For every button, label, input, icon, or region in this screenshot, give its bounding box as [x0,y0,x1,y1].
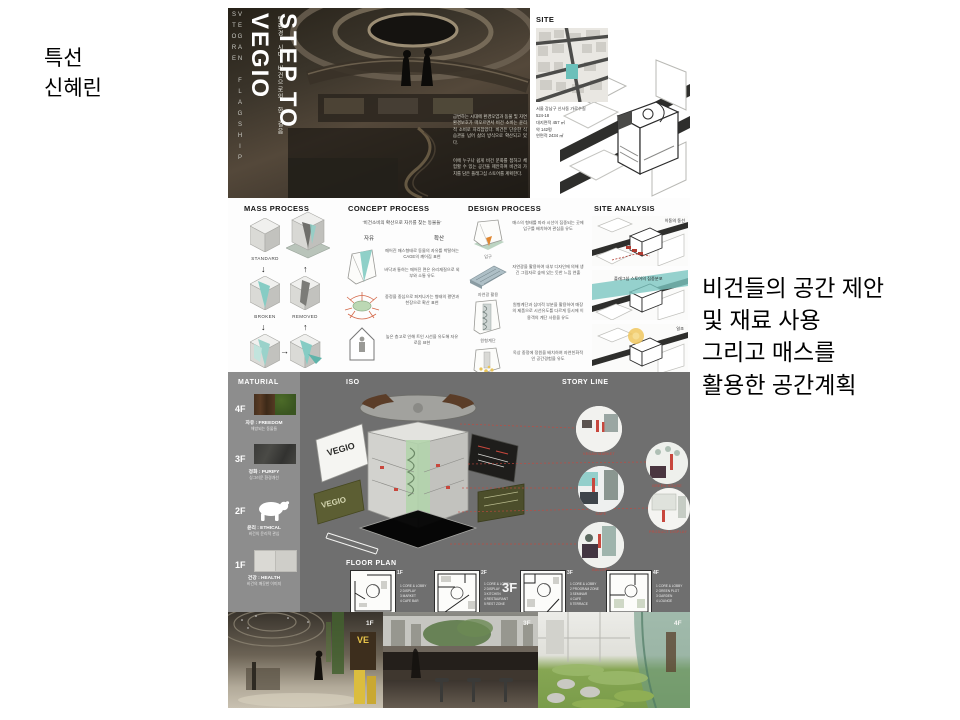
floor-level-1f: 1F [235,560,246,570]
story-vignette-4 [648,488,690,530]
lower-section: MATURIAL 4F 자유 : FREEDOM 해방되는 동물들 3F 정화 … [228,372,690,612]
note-line: 활용한 공간계획 [702,369,884,401]
ve-signboard: VE [350,632,376,670]
render-label-1f: 1F [366,620,374,627]
design-process-header: DESIGN PROCESS [468,204,541,213]
material-sub-4f: 해방되는 동물들 [228,426,300,432]
material-sub-3f: 싱그러운 환경개선 [228,475,300,481]
render-1f-atrium: VE 1F [228,612,383,708]
analysis-label-circulation: 이동의 동선 [665,218,685,224]
floor-plan-legend-3f: 1 CORE & LOBBY 2 PROGRAM ZONE 3 SEMINAR … [570,582,602,607]
story-vignette-2 [646,442,688,484]
arrow-up-icon: ↑ [303,264,308,274]
yellow-pillar [354,670,365,704]
site-analysis-header: SITE ANALYSIS [594,204,655,213]
note-line: 비건들의 공간 제안 [702,272,884,304]
story-vignette-1 [576,406,622,452]
polar-bear-icon [254,498,294,522]
floor-plan-label-4f: 4F [653,570,659,576]
material-swatch-grass [275,394,296,415]
analysis-diagram-circulation: 이동의 동선 [592,216,688,266]
render-4f-garden: 4F [538,612,690,708]
arrow-right-icon: → [280,346,289,356]
mass-cube-standard [250,218,280,252]
mass-cube-add-surface [250,334,280,368]
material-title-3f: 정화 : PURIFY [228,468,300,475]
floor-level-3f: 3F [235,454,246,464]
site-plot-highlight [566,64,578,79]
concept-label-free: 자유 [364,234,374,242]
mass-label-removed: REMOVED [280,314,330,319]
render-label-3f: 3F [523,620,531,627]
material-header: MATURIAL [238,379,279,386]
design-text-spiral-stair: 원형계단과 심미적 부분을 활용하여 매장의 제품으로 시선유도를 다르게 동시… [512,302,584,321]
render-label-4f: 4F [674,620,682,627]
arrow-down-icon: ↓ [261,264,266,274]
arrow-up-icon: ↑ [303,322,308,332]
hero-store-type-vertical: VEGAN FLAGSHIP STORE [231,12,243,194]
material-sub-1f: 비건의 깨끗한 이미지 [228,581,300,587]
concept-item1-text: 깨어진 매스형태로 동물의 자유를 박탈하는 CAGE의 깨어짐 표현 바닥과 … [384,248,460,279]
site-header: SITE [536,15,554,24]
floor-plan-legend-4f: 1 CORE & LOBBY 2 GREEN PLOT 3 GARDEN 4 L… [656,584,688,604]
concept-item3-text: 높은 층고로 인해 트인 시선을 유도해 자유로움 표현 [384,334,460,347]
story-caption-3: CAFE [574,512,628,516]
story-caption-4: PRODUCT DISPLAY [638,530,698,534]
ve-sign-text: VE [357,635,369,645]
floor-plan-3f [520,570,566,616]
mass-cube-removed [290,276,320,310]
mass-cube-broken [250,276,280,310]
concept-process-header: CONCEPT PROCESS [348,204,429,213]
mass-label-standard: STANDARD [240,256,290,261]
floor-plan-legend-1f: 1 CORE & LOBBY 2 DISPLAY 3 MARKET 4 CAFE… [400,584,430,604]
story-vignette-3 [578,466,624,512]
slide-canvas: 특선 신혜린 비건들의 공간 제안 및 재료 사용 그리고 매스를 활용한 공간… [0,0,960,720]
material-swatch-tile-2 [275,550,297,572]
floor-plan-1f [350,570,396,616]
design-board: VEGAN FLAGSHIP STORE STEP TO VEGIO 탈환경 시… [228,8,690,708]
story-line-header: STORY LINE [562,379,609,386]
hero-subtitle-vertical: 탈환경 시대 비건으로의 한 걸음 [275,16,284,166]
site-location-map [536,28,608,102]
analysis-label-flagship: 플래그십 스토어의 집중분포 [614,276,663,282]
site-areas: 대지면적 457 ㎡ 약 142평 연면적 2434 ㎡ [536,120,565,140]
material-title-2f: 윤리 : ETHICAL [228,524,300,531]
design-sketch-entrance [470,218,506,252]
floor-plan-4f [606,570,652,616]
material-sidebar: MATURIAL 4F 자유 : FREEDOM 해방되는 동물들 3F 정화 … [228,372,300,612]
material-swatch-concrete [254,444,296,464]
note-line: 그리고 매스를 [702,336,884,368]
concept-label-spread: 확산 [434,234,444,242]
floor-plan-label-1f: 1F [397,570,403,576]
design-text-garden: 옥상 중정에 정원을 배치하여 자연친화적인 공간경험을 유도 [512,350,584,363]
design-sketch-spiral-stair [472,298,502,336]
analysis-diagram-flagship: 플래그십 스토어의 집중분포 [592,270,688,320]
concept-sketch-arch [348,326,376,362]
material-title-4f: 자유 : FREEDOM [228,419,300,426]
render-3f-cafe: 3F [383,612,538,708]
concept-quote: '비건소비의 확산으로 자유를 찾는 동물들' [342,220,462,226]
design-caption-spiral-stair: 원형계단 [464,338,512,344]
material-sub-2f: 비건의 윤리적 관심 [228,531,300,537]
site-panel: SITE [530,8,690,198]
mass-cube-push [290,334,324,368]
story-caption-1: VEGAN MARKET [570,452,628,456]
design-text-entrance: 매스의 형태를 따라 시선이 집중되는 곳에 입구를 배치하여 관심을 유도 [512,220,584,233]
floor-level-4f: 4F [235,404,246,414]
project-title-vertical: STEP TO VEGIO [245,13,301,193]
award-line1: 특선 [44,44,102,74]
floor-level-2f: 2F [235,506,246,516]
floor-plan-legend-2f: 1 CORE & LOBBY 2 DISPLAY 3 KITCHEN 4 RES… [484,582,514,607]
hero-photo: VEGAN FLAGSHIP STORE STEP TO VEGIO 탈환경 시… [228,8,530,198]
annotation-note: 비건들의 공간 제안 및 재료 사용 그리고 매스를 활용한 공간계획 [702,272,884,401]
story-vignette-5 [578,522,624,568]
author-name: 신혜린 [44,74,102,104]
analysis-label-sunlight: 일조 [676,326,684,332]
yellow-pillar-2 [367,676,376,704]
analysis-diagram-sunlight: 일조 [592,324,688,374]
concept-sketch-cage [346,248,378,286]
hero-intro-paragraph-2: 이에 누구나 쉽게 비건 문화를 접하고 체험할 수 있는 공간을 제안하며 비… [453,158,527,177]
material-swatch-wood [254,394,275,415]
arrow-down-icon: ↓ [261,322,266,332]
concept-sketch-spread [344,290,380,320]
award-label: 특선 신혜린 [44,44,102,105]
note-line: 및 재료 사용 [702,304,884,336]
floor-plan-2f [434,570,480,616]
material-swatch-tile-1 [254,550,276,572]
floor-plan-label-2f: 2F [481,570,487,576]
concept-item2-text: 중정을 중심으로 퍼져나가는 형태의 평면과 천장으로 확산 표현 [384,294,460,307]
design-caption-entrance: 입구 [466,254,510,260]
floor-plan-label-3f: 3F [567,570,573,576]
design-sketch-daylight [468,262,508,290]
design-text-daylight: 자연광을 활용하여 내부 디자인에 의해 생긴 그림자로 숲에 있는 듯한 느낌… [512,264,584,277]
render-strip: VE 1F [228,612,690,708]
site-address: 서울 강남구 신사동 가로수길 524-18 [536,106,586,119]
hero-intro-paragraph-1: 급변하는 시대에 환경오염과 동물 및 자연 환경보호가 떠오르면서 비건 소비… [453,114,527,146]
mass-cube-final [286,210,330,260]
floor-plan-header: FLOOR PLAN [346,560,397,567]
process-row: MASS PROCESS STANDARD ↓ ↑ [228,198,690,372]
material-title-1f: 건강 : HEALTH [228,574,300,581]
